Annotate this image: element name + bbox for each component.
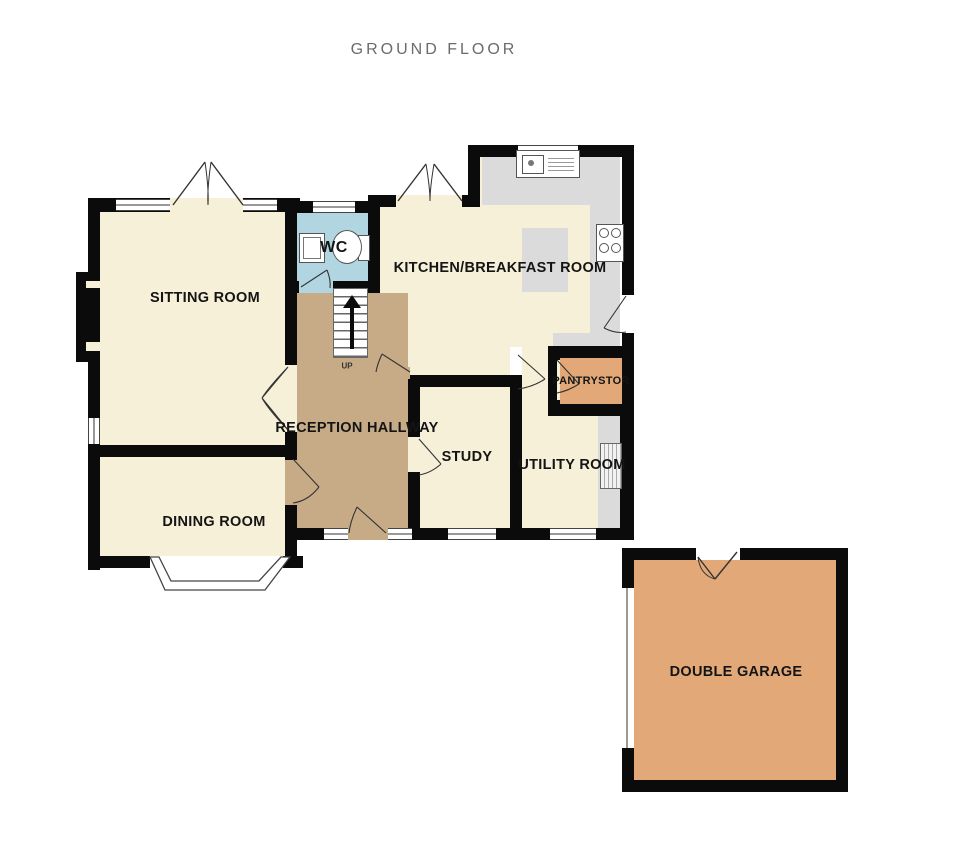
garage-doorway <box>696 548 740 560</box>
garage-wall <box>622 780 848 792</box>
wall-segment <box>88 445 297 457</box>
room-dining-room <box>100 457 285 556</box>
up-arrow <box>350 307 354 349</box>
sitting-room-label: SITTING ROOM <box>150 290 260 306</box>
wall-segment <box>88 198 100 570</box>
doorway <box>285 460 297 505</box>
window-sidelight <box>388 528 412 540</box>
garage-wall <box>622 748 634 792</box>
window <box>116 199 170 211</box>
kitchen-breakfast-room-label: KITCHEN/BREAKFAST ROOM <box>394 260 607 276</box>
wall-segment <box>548 404 634 416</box>
room-kitchen <box>380 207 620 347</box>
bay-window <box>150 557 290 590</box>
window <box>448 528 496 540</box>
wall-segment <box>548 346 634 358</box>
doorway <box>408 437 420 472</box>
window <box>243 199 277 211</box>
kitchen-sink-icon <box>516 150 580 178</box>
stairs-up-label: UP <box>341 362 352 371</box>
room-sitting-room <box>100 212 285 445</box>
garage-door-opening <box>626 588 628 748</box>
room-kitchen-lower <box>408 345 510 375</box>
doorway-french-doors <box>170 198 243 212</box>
wall-segment <box>88 556 150 568</box>
wall-segment <box>622 145 634 295</box>
page-title: GROUND FLOOR <box>351 41 518 59</box>
window <box>313 201 355 213</box>
wall-segment <box>468 145 480 207</box>
doorway-french-doors <box>396 195 462 207</box>
reception-hallway-label: RECEPTION HALLWAY <box>275 420 438 436</box>
wall-segment <box>283 556 303 568</box>
pantry-store-label: PANTRYSTOR <box>552 375 629 387</box>
window <box>88 418 100 444</box>
double-garage-label: DOUBLE GARAGE <box>670 664 803 680</box>
floorplan-canvas: GROUND FLOOR <box>0 0 980 860</box>
dining-room-label: DINING ROOM <box>162 514 265 530</box>
window-sidelight <box>324 528 348 540</box>
garage-wall <box>622 548 634 588</box>
doorway-back-door <box>622 295 634 333</box>
doorway-front-door <box>348 528 388 540</box>
wc-label: WC <box>320 239 348 257</box>
utility-room-label: UTILITY ROOM <box>518 457 625 473</box>
garage-wall <box>836 548 848 792</box>
doorway <box>299 281 333 293</box>
study-label: STUDY <box>442 449 493 465</box>
doorway <box>378 367 410 379</box>
wall-segment <box>408 375 522 387</box>
hob-icon <box>596 224 624 262</box>
window <box>550 528 596 540</box>
up-arrow-head <box>343 295 361 308</box>
